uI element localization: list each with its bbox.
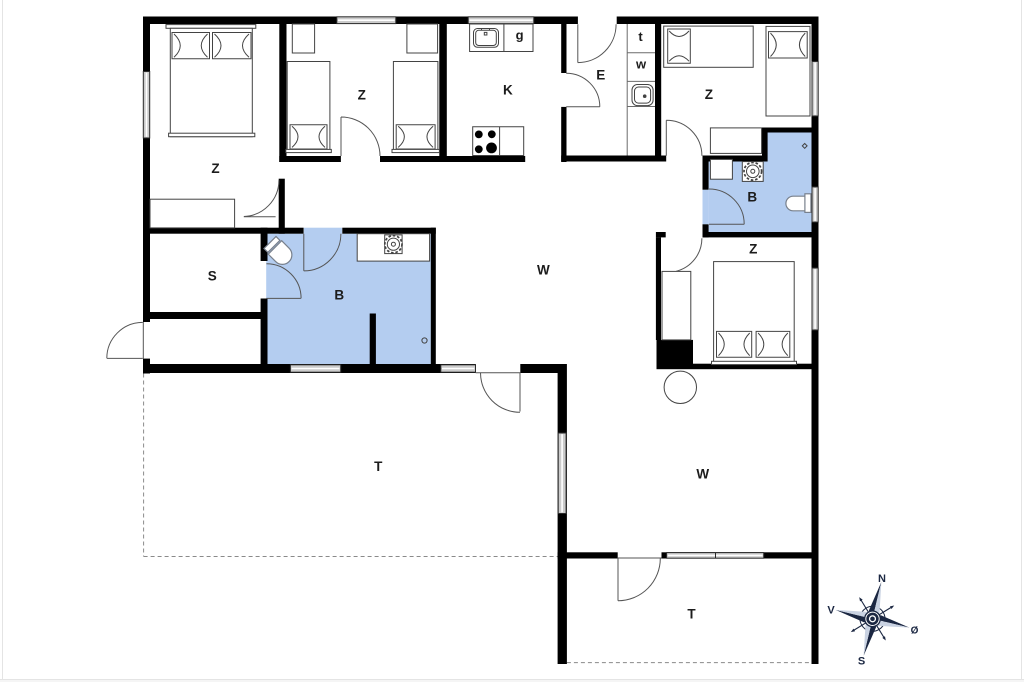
svg-text:W: W <box>696 467 709 482</box>
svg-text:T: T <box>687 607 696 622</box>
svg-text:E: E <box>596 68 605 83</box>
svg-text:K: K <box>503 83 513 98</box>
svg-text:g: g <box>516 28 524 43</box>
svg-text:W: W <box>537 263 550 278</box>
svg-text:Z: Z <box>749 241 757 256</box>
svg-text:N: N <box>878 573 886 585</box>
svg-text:T: T <box>374 459 383 474</box>
svg-text:Ø: Ø <box>911 626 919 637</box>
svg-text:Z: Z <box>358 88 366 103</box>
svg-text:B: B <box>747 190 757 205</box>
svg-text:Z: Z <box>211 161 219 176</box>
svg-text:w: w <box>635 57 647 72</box>
svg-text:S: S <box>208 269 217 284</box>
svg-text:S: S <box>858 656 865 668</box>
svg-text:t: t <box>638 29 643 44</box>
svg-text:Z: Z <box>705 87 713 102</box>
svg-text:V: V <box>827 605 835 617</box>
svg-text:B: B <box>334 288 344 303</box>
